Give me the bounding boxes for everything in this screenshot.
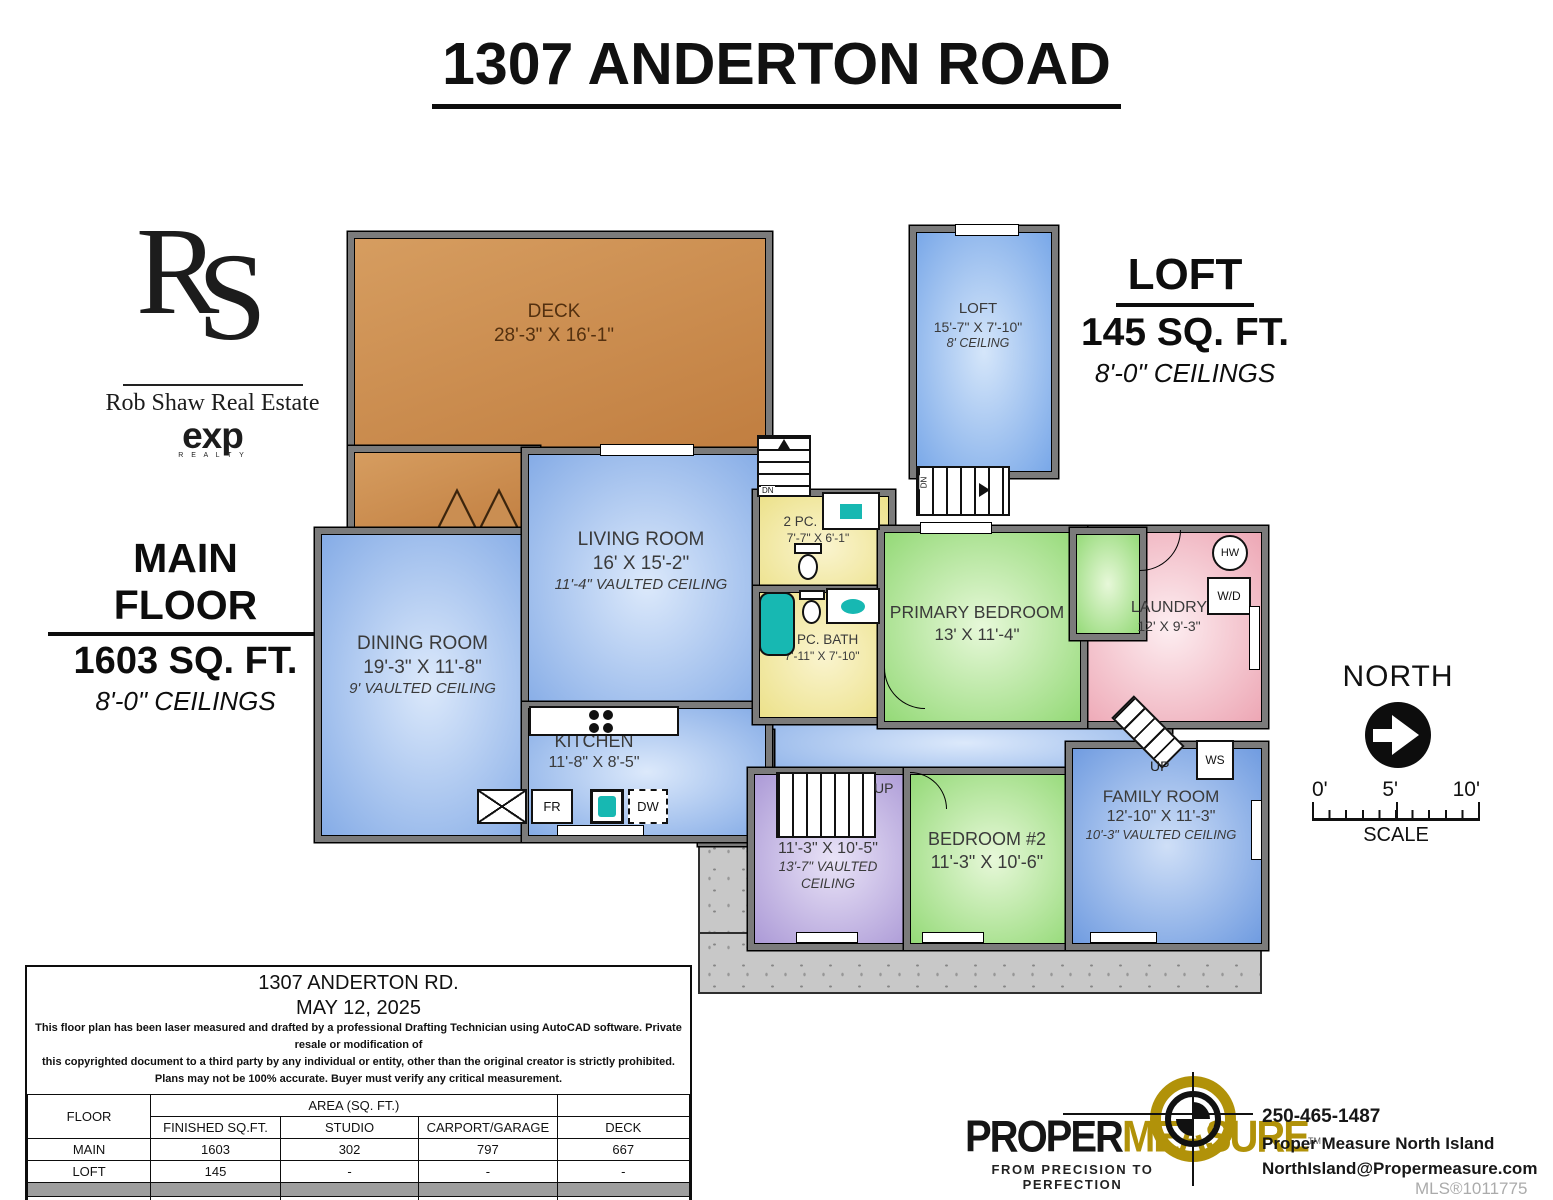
loft-stairs: DN bbox=[916, 466, 1010, 516]
page-title: 1307 ANDERTON ROAD bbox=[432, 30, 1121, 109]
cell-finished: 1603 bbox=[151, 1139, 281, 1161]
scale-label: SCALE bbox=[1312, 824, 1480, 847]
main-heading-area: 1603 SQ. FT. bbox=[48, 640, 323, 683]
deck-label: DECK 28'-3" X 16'-1" bbox=[404, 300, 704, 348]
info-box: 1307 ANDERTON RD. MAY 12, 2025 This floo… bbox=[25, 965, 692, 1200]
loft-heading: LOFT 145 SQ. FT. 8'-0" CEILINGS bbox=[1060, 250, 1310, 389]
north-compass: NORTH bbox=[1318, 660, 1478, 768]
cell-deck: 667 bbox=[557, 1139, 689, 1161]
rs-monogram: RS bbox=[95, 210, 330, 370]
room-dims: 13' X 11'-4" bbox=[880, 624, 1074, 645]
disclaimer-line-1: This floor plan has been laser measured … bbox=[27, 1020, 690, 1054]
den-window bbox=[796, 932, 858, 943]
up-label: UP bbox=[874, 780, 893, 796]
spacer-row bbox=[28, 1183, 690, 1197]
hot-water-tank: HW bbox=[1212, 535, 1248, 571]
scale-ruler bbox=[1312, 802, 1480, 821]
water-softener-label: WS bbox=[1205, 753, 1224, 767]
sink-basin-icon bbox=[840, 504, 862, 519]
area-table: FLOOR AREA (SQ. FT.) FINISHED SQ.FT. STU… bbox=[27, 1094, 690, 1200]
mls-number: MLS®1011775 bbox=[1415, 1179, 1527, 1199]
room-name: FAMILY ROOM bbox=[1068, 786, 1254, 807]
dining-room-label: DINING ROOM 19'-3" X 11'-8" 9' VAULTED C… bbox=[317, 632, 528, 698]
blank-header-cell bbox=[557, 1095, 689, 1117]
water-softener-box: WS bbox=[1196, 740, 1234, 780]
fridge-box: FR bbox=[531, 789, 573, 824]
disclaimer-line-2: this copyrighted document to a third par… bbox=[27, 1054, 690, 1071]
cell-floor: MAIN bbox=[28, 1139, 151, 1161]
cell-finished: 145 bbox=[151, 1161, 281, 1183]
bathtub bbox=[759, 592, 795, 656]
room-name: LOFT bbox=[914, 300, 1042, 319]
room-dims: 12' X 9'-3" bbox=[1108, 618, 1230, 636]
monogram-s: S bbox=[197, 229, 267, 367]
area-header-cell: AREA (SQ. FT.) bbox=[151, 1095, 557, 1117]
cell-carport: 797 bbox=[419, 1139, 557, 1161]
room-dims: 16' X 15'-2" bbox=[524, 552, 758, 576]
ensuite-toilet-bowl bbox=[798, 554, 818, 580]
cell-floor: LOFT bbox=[28, 1161, 151, 1183]
info-address: 1307 ANDERTON RD. bbox=[27, 972, 690, 995]
cell-carport: - bbox=[419, 1161, 557, 1183]
room-name: LIVING ROOM bbox=[524, 528, 758, 552]
bath-toilet-tank bbox=[799, 590, 825, 600]
loft-heading-ceilings: 8'-0" CEILINGS bbox=[1060, 358, 1310, 389]
room-ceiling: 8' CEILING bbox=[914, 336, 1042, 352]
logo-proper: PROPER bbox=[965, 1112, 1122, 1162]
room-dims: 19'-3" X 11'-8" bbox=[317, 656, 528, 680]
living-room-label: LIVING ROOM 16' X 15'-2" 11'-4" VAULTED … bbox=[524, 528, 758, 594]
family-room-label: FAMILY ROOM 12'-10" X 11'-3" 10'-3" VAUL… bbox=[1068, 786, 1254, 844]
bath-vanity bbox=[826, 588, 880, 624]
ensuite-toilet-tank bbox=[794, 543, 822, 554]
scale-tick-labels: 0' 5' 10' bbox=[1312, 778, 1480, 802]
room-dims: 11'-8" X 8'-5" bbox=[508, 753, 680, 773]
deck-area bbox=[348, 232, 772, 466]
loft-room bbox=[910, 226, 1058, 478]
brokerage-realty: R E A L T Y bbox=[95, 452, 330, 459]
floor-plan-page: 1307 ANDERTON ROAD RS Rob Shaw Real Esta… bbox=[0, 0, 1553, 1200]
laundry-window bbox=[1249, 606, 1260, 670]
table-row: LOFT 145 - - - bbox=[28, 1161, 690, 1183]
scale-tick-10: 10' bbox=[1453, 778, 1480, 802]
dn-label: DN bbox=[761, 486, 775, 495]
den-stairs bbox=[776, 772, 876, 838]
col-studio: STUDIO bbox=[280, 1117, 418, 1139]
col-deck: DECK bbox=[557, 1117, 689, 1139]
main-heading-ceilings: 8'-0" CEILINGS bbox=[48, 686, 323, 717]
room-ceiling: 11'-4" VAULTED CEILING bbox=[524, 576, 758, 595]
loft-window bbox=[955, 224, 1019, 236]
stair-arrow-icon bbox=[778, 439, 790, 449]
pantry-xbox-icon bbox=[477, 789, 527, 824]
dn-label: DN bbox=[919, 476, 928, 490]
page-title-wrap: 1307 ANDERTON ROAD bbox=[0, 30, 1553, 109]
scale-tick-0: 0' bbox=[1312, 778, 1328, 802]
washer-dryer-label: W/D bbox=[1217, 589, 1240, 603]
family-window-right bbox=[1251, 800, 1262, 860]
agency-name: Rob Shaw Real Estate bbox=[95, 390, 330, 417]
stove-burners-icon bbox=[589, 710, 614, 733]
main-heading-name: MAIN FLOOR bbox=[48, 535, 323, 636]
family-window-bottom bbox=[1090, 932, 1157, 943]
room-name: DECK bbox=[404, 300, 704, 324]
room-name: PRIMARY BEDROOM bbox=[880, 602, 1074, 624]
floor-header-cell: FLOOR bbox=[28, 1095, 151, 1139]
dishwasher-box: DW bbox=[628, 789, 668, 824]
room-dims: 11'-3" X 10'-5" bbox=[752, 839, 904, 859]
cell-studio: - bbox=[280, 1161, 418, 1183]
logo-tagline: FROM PRECISION TO PERFECTION bbox=[965, 1162, 1180, 1192]
primary-bedroom-label: PRIMARY BEDROOM 13' X 11'-4" bbox=[880, 602, 1074, 645]
cell-studio: 302 bbox=[280, 1139, 418, 1161]
stairs-down: DN bbox=[757, 435, 811, 497]
ensuite-vanity bbox=[822, 492, 880, 530]
table-header-row: FLOOR AREA (SQ. FT.) bbox=[28, 1095, 690, 1117]
room-ceiling: 9' VAULTED CEILING bbox=[317, 680, 528, 699]
room-dims: 15'-7" X 7'-10" bbox=[914, 319, 1042, 337]
cell-deck: - bbox=[557, 1161, 689, 1183]
north-arrow-icon bbox=[1365, 702, 1431, 768]
kitchen-label: KITCHEN 11'-8" X 8'-5" bbox=[508, 730, 680, 773]
kitchen-counter bbox=[529, 706, 679, 736]
footer-email: NorthIsland@Propermeasure.com bbox=[1262, 1159, 1537, 1179]
room-name: BEDROOM #2 bbox=[906, 828, 1068, 851]
main-floor-heading: MAIN FLOOR 1603 SQ. FT. 8'-0" CEILINGS bbox=[48, 535, 323, 717]
scale-tick-5: 5' bbox=[1382, 778, 1398, 802]
primary-window bbox=[920, 522, 992, 534]
disclaimer-line-3: Plans may not be 100% accurate. Buyer mu… bbox=[27, 1071, 690, 1088]
col-carport: CARPORT/GARAGE bbox=[419, 1117, 557, 1139]
room-ceiling: 10'-3" VAULTED CEILING bbox=[1068, 827, 1254, 843]
bedroom-2-label: BEDROOM #2 11'-3" X 10'-6" bbox=[906, 828, 1068, 873]
kitchen-window bbox=[557, 825, 644, 836]
room-dims: 11'-3" X 10'-6" bbox=[906, 851, 1068, 874]
scale-bar: 0' 5' 10' SCALE bbox=[1312, 778, 1480, 847]
room-name: DINING ROOM bbox=[317, 632, 528, 656]
loft-room-label: LOFT 15'-7" X 7'-10" 8' CEILING bbox=[914, 300, 1042, 352]
kitchen-sink bbox=[590, 789, 624, 824]
living-window bbox=[600, 444, 694, 456]
room-dims: 28'-3" X 16'-1" bbox=[404, 324, 704, 348]
info-date: MAY 12, 2025 bbox=[27, 997, 690, 1020]
table-row: MAIN 1603 302 797 667 bbox=[28, 1139, 690, 1161]
room-ceiling: 13'-7" VAULTED CEILING bbox=[773, 859, 883, 893]
up-label: UP bbox=[1150, 758, 1169, 774]
loft-heading-name: LOFT bbox=[1116, 250, 1255, 307]
sink-basin-icon bbox=[841, 599, 865, 614]
crosshair-vertical bbox=[1192, 1072, 1194, 1186]
footer-company: Proper Measure North Island bbox=[1262, 1134, 1494, 1154]
crosshair-horizontal bbox=[1063, 1113, 1253, 1115]
logo-divider bbox=[123, 384, 303, 386]
hot-water-label: HW bbox=[1221, 547, 1239, 559]
loft-heading-area: 145 SQ. FT. bbox=[1060, 311, 1310, 355]
north-label: NORTH bbox=[1318, 660, 1478, 694]
brokerage-logo: exp bbox=[95, 419, 330, 452]
sink-basin-icon bbox=[598, 796, 616, 817]
stair-arrow-icon bbox=[979, 483, 990, 497]
col-finished: FINISHED SQ.FT. bbox=[151, 1117, 281, 1139]
rs-logo: RS Rob Shaw Real Estate exp R E A L T Y bbox=[95, 210, 330, 459]
bath-toilet-bowl bbox=[802, 600, 821, 624]
room-dims: 12'-10" X 11'-3" bbox=[1068, 807, 1254, 827]
bedroom2-window bbox=[922, 932, 984, 943]
washer-dryer-box: W/D bbox=[1207, 577, 1251, 615]
fridge-label: FR bbox=[543, 799, 560, 814]
footer-phone: 250-465-1487 bbox=[1262, 1106, 1380, 1128]
dishwasher-label: DW bbox=[637, 799, 659, 814]
